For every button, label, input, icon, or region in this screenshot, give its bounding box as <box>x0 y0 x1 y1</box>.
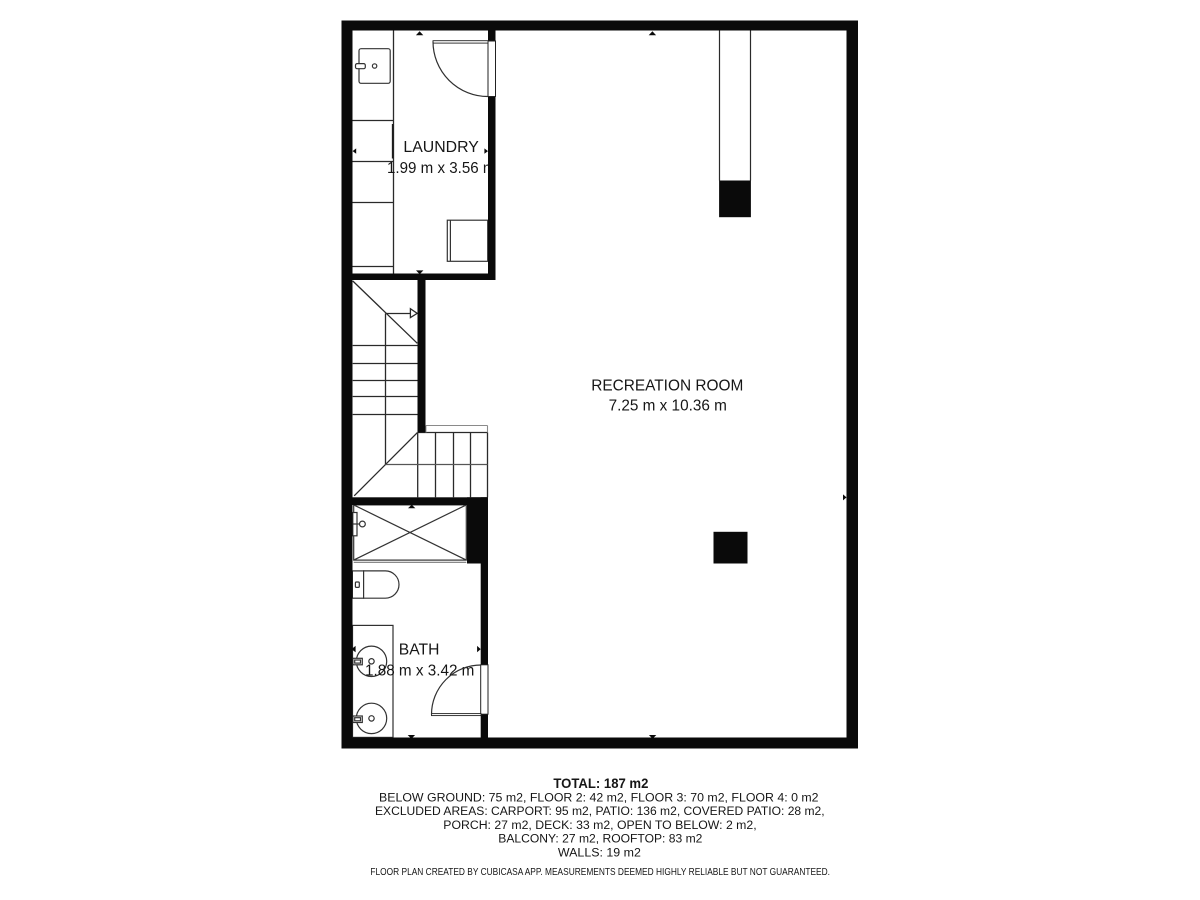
svg-text:1.99 m x 3.56 m: 1.99 m x 3.56 m <box>387 160 496 177</box>
svg-text:PORCH: 27 m2, DECK: 33 m2, OPE: PORCH: 27 m2, DECK: 33 m2, OPEN TO BELOW… <box>443 818 756 832</box>
svg-text:BATH: BATH <box>399 642 440 659</box>
svg-text:FLOOR PLAN CREATED BY CUBICASA: FLOOR PLAN CREATED BY CUBICASA APP. MEAS… <box>370 867 830 878</box>
svg-text:EXCLUDED AREAS: CARPORT: 95 m2: EXCLUDED AREAS: CARPORT: 95 m2, PATIO: 1… <box>375 804 825 818</box>
svg-text:TOTAL: 187 m2: TOTAL: 187 m2 <box>553 775 648 791</box>
svg-text:BELOW GROUND: 75 m2, FLOOR 2:: BELOW GROUND: 75 m2, FLOOR 2: 42 m2, FLO… <box>379 790 819 804</box>
svg-text:BALCONY: 27 m2, ROOFTOP: 83 m2: BALCONY: 27 m2, ROOFTOP: 83 m2 <box>498 832 702 846</box>
svg-text:7.25 m x 10.36 m: 7.25 m x 10.36 m <box>609 398 727 415</box>
svg-text:LAUNDRY: LAUNDRY <box>403 139 478 156</box>
svg-text:RECREATION ROOM: RECREATION ROOM <box>591 377 743 394</box>
svg-text:WALLS: 19 m2: WALLS: 19 m2 <box>558 845 641 859</box>
